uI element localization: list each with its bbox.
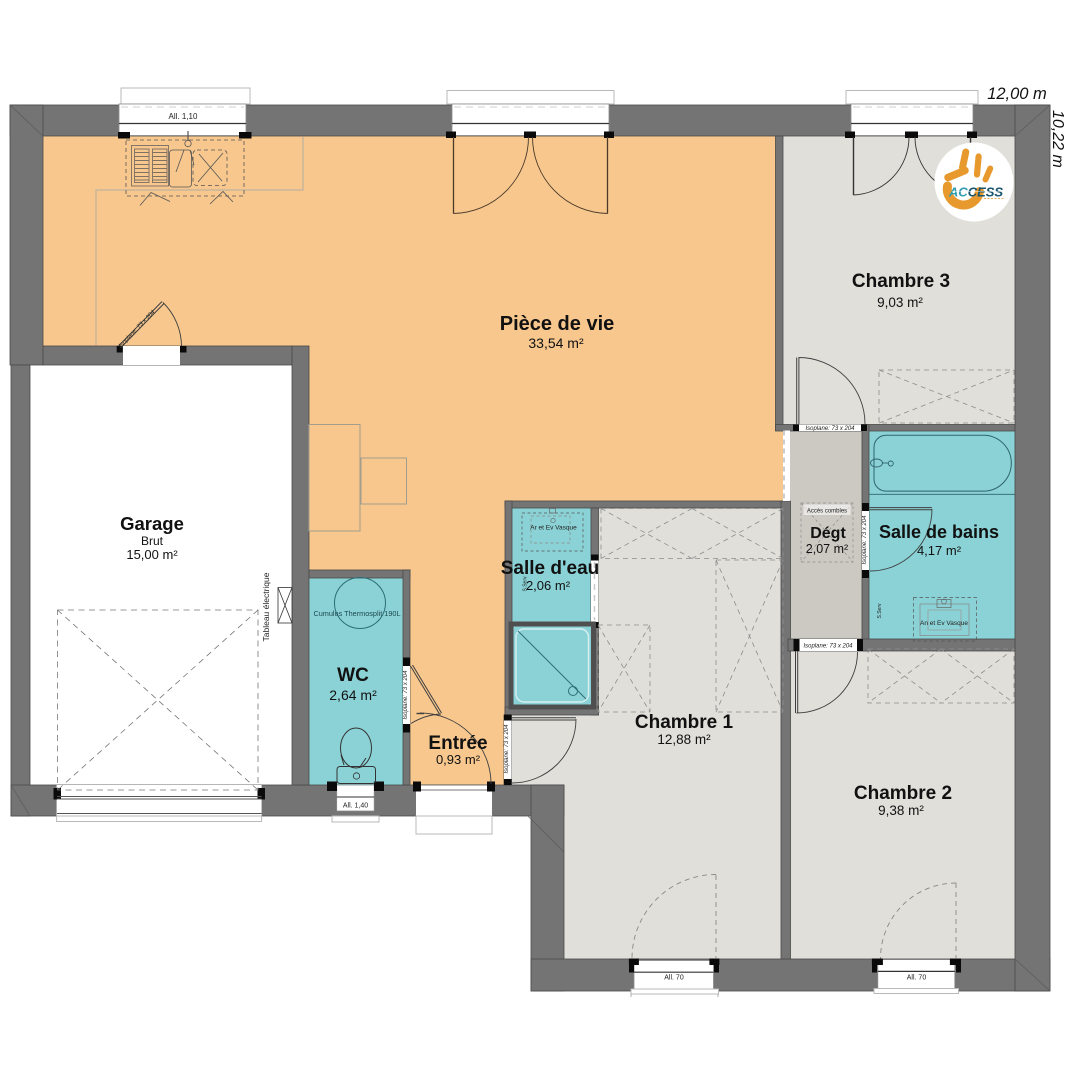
svg-text:All. 70: All. 70 [664,975,684,982]
svg-text:Accès combles: Accès combles [807,509,847,515]
svg-text:WC: WC [337,665,369,686]
svg-text:2,64 m²: 2,64 m² [329,687,377,703]
svg-text:Salle d'eau: Salle d'eau [501,558,600,579]
svg-text:S.Serv: S.Serv [877,603,883,619]
svg-text:Pièce de vie: Pièce de vie [500,313,615,335]
svg-text:Brut: Brut [141,534,164,548]
svg-text:15,00 m²: 15,00 m² [126,547,178,562]
svg-text:12,00 m: 12,00 m [987,85,1047,103]
svg-text:All. 1,10: All. 1,10 [169,112,198,121]
svg-text:Chambre 1: Chambre 1 [635,712,734,733]
svg-text:Tableau électrique: Tableau électrique [261,572,271,641]
svg-text:Isoplane: 73 x 204: Isoplane: 73 x 204 [862,515,868,565]
svg-text:Isoplane: 73 x 204: Isoplane: 73 x 204 [403,670,409,720]
svg-text:Isoplane: 73 x 204: Isoplane: 73 x 204 [504,724,510,774]
svg-text:Entrée: Entrée [428,733,487,754]
svg-text:ACCESS: ACCESS [948,185,1004,200]
svg-text:Ar et Ev Vasque: Ar et Ev Vasque [530,525,577,532]
svg-text:9,03 m²: 9,03 m² [877,295,923,310]
svg-text:33,54 m²: 33,54 m² [528,335,584,351]
svg-text:Isoplane: 73 x 204: Isoplane: 73 x 204 [803,644,853,650]
svg-text:All. 1,40: All. 1,40 [343,803,368,810]
svg-text:0,93 m²: 0,93 m² [436,752,481,767]
svg-text:Dégt: Dégt [810,525,846,542]
svg-text:S.Serv: S.Serv [523,576,529,592]
svg-text:2,07 m²: 2,07 m² [806,542,848,556]
svg-text:9,38 m²: 9,38 m² [878,803,924,818]
svg-text:Chambre 3: Chambre 3 [852,271,950,292]
svg-text:12,88 m²: 12,88 m² [657,732,711,747]
svg-text:All. 70: All. 70 [907,975,927,982]
svg-text:Isoplane: 73 x 204: Isoplane: 73 x 204 [805,426,855,432]
svg-text:Garage: Garage [120,513,184,534]
svg-text:Chambre 2: Chambre 2 [854,783,952,804]
svg-text:4,17 m²: 4,17 m² [917,543,962,558]
svg-text:Salle de bains: Salle de bains [879,522,999,542]
svg-text:10,22 m: 10,22 m [1049,110,1066,168]
svg-text:Cumulus Thermosplit 190L: Cumulus Thermosplit 190L [313,609,400,618]
svg-text:2,06 m²: 2,06 m² [526,578,571,593]
svg-text:An et Ev Vasque: An et Ev Vasque [920,620,968,627]
